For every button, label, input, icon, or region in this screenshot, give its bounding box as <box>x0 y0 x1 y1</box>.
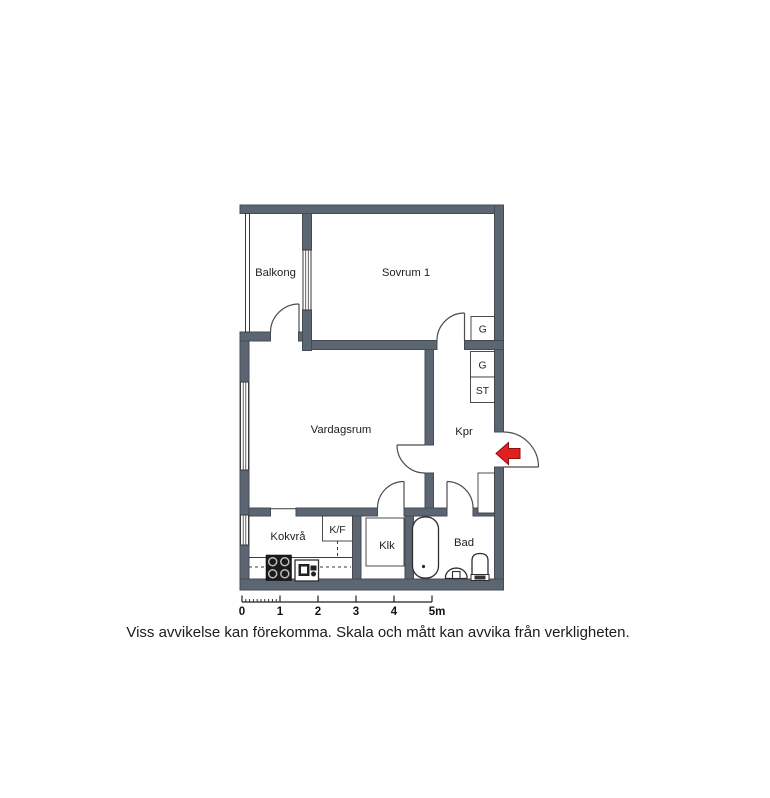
room-label-klk: Klk <box>379 540 395 552</box>
window-livingroom <box>241 382 249 470</box>
entrance-arrow-icon <box>496 443 520 465</box>
bathtub-icon <box>413 517 439 578</box>
room-label-vardagsrum: Vardagsrum <box>311 424 372 436</box>
window-bedroom-balcony <box>303 250 311 310</box>
room-label-balkong: Balkong <box>255 267 296 279</box>
wall-top <box>240 205 504 214</box>
floor-plan: Balkong Sovrum 1 Vardagsrum Kpr Kokvrå K… <box>0 0 770 798</box>
wall-vardagsrum-kpr-upper <box>425 350 434 446</box>
closet-label-g-sovrum: G <box>479 325 487 336</box>
room-label-kokvra: Kokvrå <box>270 531 306 543</box>
kitchen-fixtures <box>249 555 352 581</box>
wall-balcony-sovrum-lower <box>303 310 312 351</box>
door-balcony <box>271 304 300 333</box>
washbasin-icon <box>471 554 489 581</box>
room-label-bad: Bad <box>454 537 474 549</box>
wall-balcony-sovrum-upper <box>303 214 312 251</box>
wall-sovrum-bottom-b <box>465 341 504 350</box>
windows <box>241 250 312 545</box>
kitchen-sink-icon <box>295 560 319 581</box>
fridge-freezer-label: K/F <box>329 524 345 536</box>
scale-tick-1: 1 <box>277 606 284 618</box>
door-bathroom <box>447 482 473 509</box>
floor-plan-page: Balkong Sovrum 1 Vardagsrum Kpr Kokvrå K… <box>0 0 770 798</box>
window-kitchen <box>241 515 249 545</box>
door-klk <box>378 482 405 509</box>
closet-label-st-kpr: ST <box>476 386 490 397</box>
wall-kokvra-top-a <box>249 508 271 516</box>
wall-right-lower <box>495 467 504 590</box>
closet-label-g-kpr: G <box>478 361 486 372</box>
scale-tick-4: 4 <box>391 606 398 618</box>
wall-sovrum-bottom-a <box>312 341 438 350</box>
toilet-icon <box>445 568 467 578</box>
shaft-box <box>478 473 495 513</box>
balcony-railing <box>246 214 250 333</box>
bath-fixtures <box>413 517 490 581</box>
door-bedroom <box>437 313 465 341</box>
door-livingroom-hall <box>397 445 425 473</box>
wall-kokvra-top-b <box>296 508 378 516</box>
scale-tick-3: 3 <box>353 606 359 618</box>
scale-tick-0: 0 <box>239 606 245 618</box>
stove-icon <box>266 555 292 581</box>
room-label-sovrum-1: Sovrum 1 <box>382 267 430 279</box>
scale-tick-2: 2 <box>315 606 321 618</box>
scale-tick-5m: 5m <box>429 606 446 618</box>
wall-kokvra-klk <box>353 516 362 579</box>
wall-bath-top <box>404 508 447 516</box>
scale-bar: 0 1 2 3 4 5m <box>239 596 446 619</box>
wall-balcony-bottom-a <box>240 332 271 341</box>
disclaimer-text: Viss avvikelse kan förekomma. Skala och … <box>126 624 629 641</box>
wall-right-upper <box>495 205 504 432</box>
room-label-kpr: Kpr <box>455 426 473 438</box>
